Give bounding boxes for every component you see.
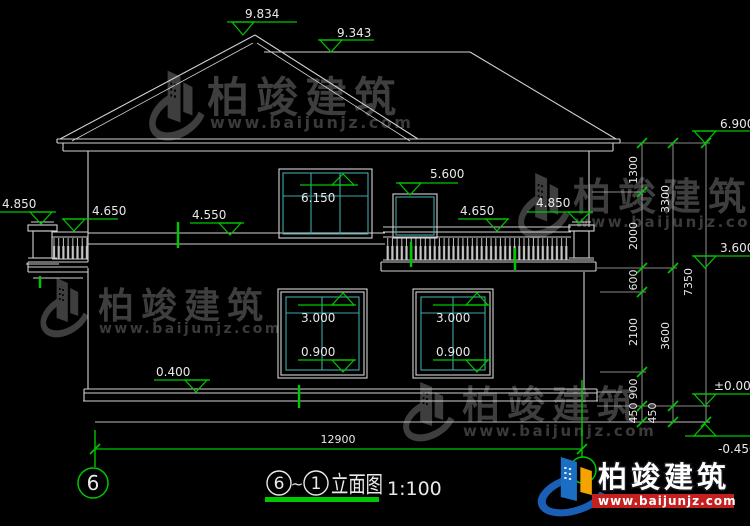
- marker-value: 6.150: [301, 191, 335, 205]
- dim-label: 600: [627, 270, 640, 291]
- drawing-title: 6 ~ 1 立面图 1:100: [265, 471, 442, 502]
- marker-value: 9.834: [245, 7, 279, 21]
- marker-ridge-main: 9.834: [227, 7, 297, 35]
- marker-ground: -0.450: [685, 424, 750, 456]
- marker-rail-left: 4.650: [62, 204, 126, 231]
- dim-label: 3600: [659, 322, 672, 350]
- marker-winA-top: 3.000: [298, 293, 356, 325]
- watermark-top-center: 柏竣建筑 www.baijunjz.com: [148, 71, 414, 145]
- marker-zero: ±0.000: [692, 379, 750, 406]
- watermark-left-middle: 柏竣建筑 www.baijunjz.com: [39, 278, 282, 341]
- marker-winB-sill: 0.900: [433, 345, 491, 372]
- axis-bubble-left-number: 6: [87, 471, 100, 495]
- marker-value: 4.850: [2, 197, 36, 211]
- dim-label: 2100: [627, 318, 640, 346]
- dim-label: 1300: [627, 156, 640, 184]
- dim-label: 900: [627, 379, 640, 400]
- marker-value: ±0.000: [714, 379, 750, 393]
- brand-name: 柏竣建筑: [598, 460, 730, 494]
- dim-label: 2000: [627, 222, 640, 250]
- marker-floor2: 3.600: [692, 241, 750, 268]
- balusters-right: [386, 238, 569, 260]
- watermark-url: www.baijunjz.com: [575, 213, 750, 231]
- marker-value: 4.650: [92, 204, 126, 218]
- title-underline: [265, 497, 379, 502]
- marker-value: 5.600: [430, 167, 464, 181]
- brand-url: www.baijunjz.com: [598, 494, 737, 508]
- dim-label: 450: [646, 403, 659, 424]
- marker-ridge-secondary: 9.343: [318, 26, 374, 52]
- watermark-bottom-center: 柏竣建筑 www.baijunjz.com: [402, 382, 657, 445]
- dim-label: 7350: [682, 268, 695, 296]
- marker-belt: 4.550: [190, 208, 244, 235]
- marker-eave: 6.900: [692, 117, 750, 143]
- marker-value: 0.400: [156, 365, 190, 379]
- marker-value: 0.900: [301, 345, 335, 359]
- title-tilde: ~: [291, 475, 304, 493]
- watermark-logo-icon: [39, 278, 92, 341]
- dim-label: 3300: [659, 185, 672, 213]
- elevation-drawing: 柏竣建筑 www.baijunjz.com 柏竣建筑 www.baijunjz.…: [0, 0, 750, 526]
- brand-logo: 柏竣建筑 www.baijunjz.com: [536, 457, 737, 520]
- marker-post-left: 4.850: [0, 197, 56, 224]
- dim-label: 450: [627, 403, 640, 424]
- title-bubble-left-number: 6: [274, 474, 285, 494]
- window-2f-small: [393, 194, 437, 238]
- marker-value: -0.450: [718, 442, 750, 456]
- marker-value: 0.900: [436, 345, 470, 359]
- marker-value: 3.000: [301, 311, 335, 325]
- window-1f-b: [413, 289, 493, 378]
- marker-value: 9.343: [337, 26, 371, 40]
- watermark-logo-icon: [402, 382, 458, 445]
- marker-value: 4.550: [192, 208, 226, 222]
- marker-value: 4.650: [460, 204, 494, 218]
- title-bubble-right-number: 1: [311, 474, 322, 494]
- dim-label-bottom: 12900: [321, 433, 356, 446]
- marker-winB-top: 3.000: [433, 293, 491, 325]
- eave-band: [57, 139, 620, 151]
- marker-value: 4.850: [536, 196, 570, 210]
- elevation-drawing-canvas: 柏竣建筑 www.baijunjz.com 柏竣建筑 www.baijunjz.…: [0, 0, 750, 526]
- title-label: 立面图: [331, 472, 383, 498]
- marker-win2f-top: 6.150: [300, 174, 358, 205]
- watermark-logo-icon: [148, 71, 209, 145]
- watermark-url: www.baijunjz.com: [463, 422, 656, 440]
- window-1f-a: [278, 289, 367, 378]
- balcony-right: [381, 222, 596, 271]
- marker-winA-sill: 0.900: [298, 345, 356, 372]
- balcony-left: [26, 222, 88, 278]
- watermark-name: 柏竣建筑: [462, 383, 642, 427]
- marker-value: 3.000: [436, 311, 470, 325]
- marker-value: 3.600: [720, 241, 750, 255]
- watermark-url: www.baijunjz.com: [99, 321, 282, 337]
- watermark-url: www.baijunjz.com: [210, 113, 413, 132]
- balusters-left: [53, 238, 88, 259]
- marker-value: 6.900: [720, 117, 750, 131]
- title-scale: 1:100: [387, 478, 442, 500]
- marker-plinth: 0.400: [154, 365, 210, 392]
- marker-win2f-small-top: 5.600: [396, 167, 464, 195]
